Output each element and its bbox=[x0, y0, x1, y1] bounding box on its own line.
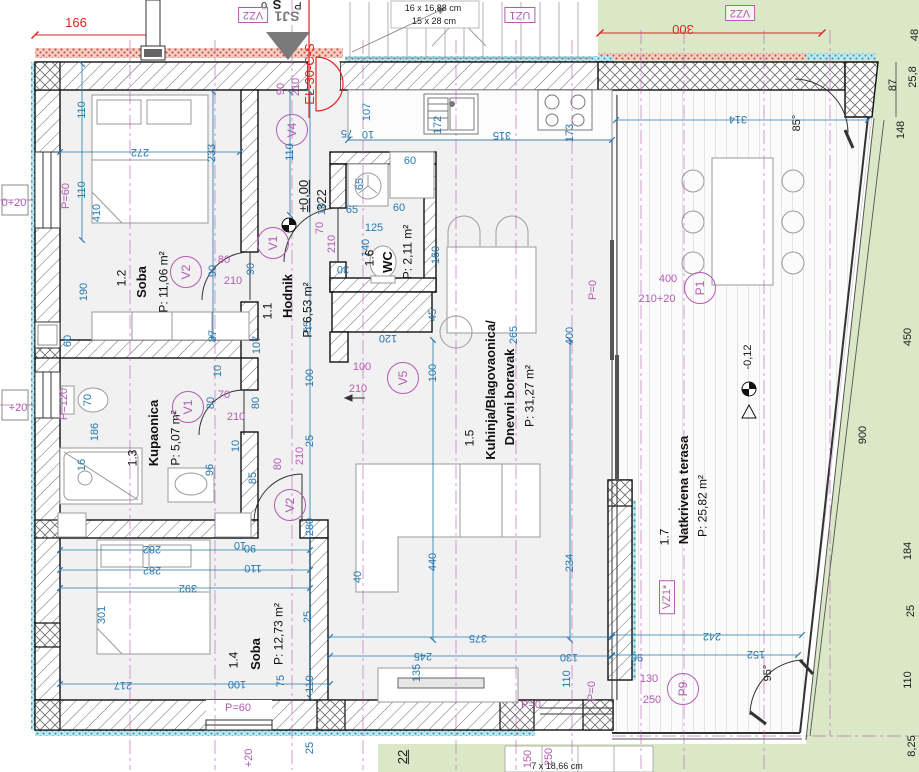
site-dim: 148 bbox=[895, 121, 907, 139]
door-spec: 0+20 bbox=[2, 197, 27, 209]
dim-label: 90 bbox=[245, 263, 257, 275]
wall-tag-uz1: UZ1 bbox=[505, 7, 536, 23]
parapet: P=60 bbox=[60, 183, 72, 209]
wall-tag-vz2: VZ2 bbox=[238, 7, 268, 23]
door-spec: 210 bbox=[294, 447, 306, 465]
red-dim: 166 bbox=[65, 16, 87, 30]
dim-label: 40 bbox=[352, 571, 364, 583]
floor-plan: 166300EL-30-C-SSJ10SP16 x 16,88 cm15 x 2… bbox=[0, 0, 919, 772]
dim-label: 85 bbox=[247, 472, 259, 484]
room-name: Kupaonica bbox=[147, 400, 161, 466]
dim-label: 242 bbox=[703, 630, 721, 642]
room-number: 1.7 bbox=[658, 529, 671, 546]
stair-spec: 15 x 28 cm bbox=[412, 17, 456, 27]
dim-label: 160 bbox=[430, 246, 442, 264]
room-name: Natkrivena terasa bbox=[677, 436, 691, 544]
opening-tag-p9: P9 bbox=[667, 673, 699, 705]
room-name: Soba bbox=[249, 638, 263, 670]
dim-label: 65 bbox=[354, 178, 366, 190]
dim-label: 152 bbox=[747, 648, 765, 660]
dim-label: 16 bbox=[76, 459, 88, 471]
dim-label: 10 bbox=[230, 440, 242, 452]
wall-tag-vz2: VZ2 bbox=[725, 5, 755, 21]
room-number: 1.3 bbox=[126, 450, 139, 467]
dim-label: 110 bbox=[304, 675, 316, 693]
room-name: Soba bbox=[135, 266, 149, 298]
dim-label: 100 bbox=[228, 678, 246, 690]
room-area: P: 12,73 m² bbox=[272, 603, 285, 665]
dim-label: 282 bbox=[143, 564, 161, 576]
dim-label: 90 bbox=[631, 651, 643, 663]
opening-tag-v2: V2 bbox=[170, 256, 202, 288]
room-name: Kuhinja/Blagovaonica/ bbox=[484, 320, 498, 459]
opening-tag-v5: V5 bbox=[387, 362, 419, 394]
door-spec: 210 bbox=[290, 78, 302, 96]
dim-label: 25 bbox=[304, 742, 316, 754]
red-dim: 300 bbox=[672, 22, 694, 36]
site-dim: 48 bbox=[909, 29, 919, 41]
electrical-tag: EL-30-C-S bbox=[303, 43, 317, 104]
door-spec: 250 bbox=[543, 748, 555, 766]
opening-tag-v1: V1 bbox=[257, 227, 289, 259]
dim-label: 110 bbox=[561, 670, 573, 688]
parapet: P=0 bbox=[521, 699, 541, 711]
dim-label: 90 bbox=[207, 265, 219, 277]
dim-label: 10 bbox=[362, 128, 374, 140]
dim-label: 135 bbox=[411, 664, 423, 682]
dim-label: 60 bbox=[62, 335, 74, 347]
cutoff-text: P bbox=[294, 0, 301, 11]
level-marker: -0,12 bbox=[742, 344, 754, 369]
door-spec: +20 bbox=[243, 749, 255, 768]
opening-tag-v4: V4 bbox=[276, 114, 308, 146]
dim-label: 375 bbox=[469, 632, 487, 644]
site-dim: 25 bbox=[905, 605, 917, 617]
parapet: P=60 bbox=[225, 702, 251, 714]
wall-tag-vz1: VZ1* bbox=[659, 580, 675, 614]
door-spec: +20 bbox=[9, 402, 28, 414]
dim-label: 265 bbox=[508, 326, 520, 344]
door-spec: 90 bbox=[275, 83, 287, 95]
door-spec: 80 bbox=[218, 254, 230, 266]
dim-label: 110 bbox=[76, 101, 88, 119]
cutoff-text: S bbox=[273, 0, 282, 11]
dim-label: 110 bbox=[244, 562, 262, 574]
opening-tag-p1: P1 bbox=[684, 272, 716, 304]
door-spec: 250 bbox=[643, 694, 661, 706]
dim-label: 190 bbox=[78, 283, 90, 301]
dim-label: 440 bbox=[427, 553, 439, 571]
dim-label: 30 bbox=[337, 263, 349, 275]
angle: 85° bbox=[791, 115, 803, 132]
dim-label: 107 bbox=[361, 103, 373, 121]
dim-label: 410 bbox=[91, 204, 103, 222]
door-spec: 210 bbox=[224, 275, 242, 287]
dim-label: 314 bbox=[729, 113, 747, 125]
room-area: P: 25,82 m² bbox=[696, 475, 709, 537]
dim-label: 282 bbox=[143, 543, 161, 555]
angle: 95° bbox=[762, 665, 774, 682]
door-spec: 70 bbox=[314, 222, 326, 234]
opening-tag-v1: V1 bbox=[172, 391, 204, 423]
stair-spec: 7 x 18,66 cm bbox=[531, 762, 583, 772]
dim-label: 25 bbox=[304, 435, 316, 447]
dim-label: 272 bbox=[131, 146, 149, 158]
dim-label: 280 bbox=[304, 518, 316, 536]
parapet: P=120 bbox=[58, 388, 70, 420]
door-spec: 210 bbox=[349, 383, 367, 395]
site-dim: 450 bbox=[902, 328, 914, 346]
dim-label: 75 bbox=[275, 675, 287, 687]
room-name: Dnevni boravak bbox=[503, 349, 517, 446]
site-dim: 8,25 bbox=[906, 735, 918, 756]
parapet: P=0 bbox=[587, 280, 599, 300]
dim-label: 25 bbox=[302, 611, 314, 623]
dim-label: 172 bbox=[432, 116, 444, 134]
dim-label: 125 bbox=[365, 222, 383, 234]
door-spec: 150 bbox=[522, 750, 534, 768]
dim-label: 80 bbox=[205, 397, 217, 409]
dim-label: 130 bbox=[560, 651, 578, 663]
annotation-layer: 166300EL-30-C-SSJ10SP16 x 16,88 cm15 x 2… bbox=[0, 0, 919, 772]
dim-label: 400 bbox=[564, 327, 576, 345]
dim-label: 70 bbox=[82, 394, 94, 406]
dim-label: 10 bbox=[316, 203, 328, 215]
door-spec: 210+20 bbox=[638, 293, 675, 305]
room-name: WC bbox=[381, 251, 395, 273]
room-area: P: 6,53 m² bbox=[301, 282, 314, 337]
room-number: 1.4 bbox=[227, 652, 240, 669]
dim-label: 45 bbox=[427, 309, 439, 321]
dim-label: 233 bbox=[206, 144, 218, 162]
room-number: 1.6 bbox=[363, 250, 376, 267]
dim-label: 234 bbox=[564, 554, 576, 572]
dim-label: 75 bbox=[341, 127, 353, 139]
dim-label: 10 bbox=[212, 365, 224, 377]
dim-label: 392 bbox=[179, 582, 197, 594]
door-spec: 100 bbox=[353, 361, 371, 373]
dim-label: 120 bbox=[379, 332, 397, 344]
dim-label: 60 bbox=[404, 155, 416, 167]
door-spec: 70 bbox=[218, 389, 230, 401]
dim: 22 bbox=[396, 750, 410, 764]
dim-label: 96 bbox=[204, 464, 216, 476]
dim-label: 110 bbox=[76, 181, 88, 199]
room-number: 1.2 bbox=[115, 270, 128, 287]
stair-spec: 16 x 16,88 cm bbox=[405, 4, 462, 14]
room-number: 1.1 bbox=[261, 303, 274, 320]
dim-label: 100 bbox=[304, 369, 316, 387]
room-number: 1.5 bbox=[463, 430, 476, 447]
dim-label: 107 bbox=[251, 336, 263, 354]
door-spec: 400 bbox=[659, 273, 677, 285]
site-dim: 110 bbox=[902, 671, 914, 689]
level-marker: ±0,00 bbox=[297, 180, 311, 212]
dim-label: 87 bbox=[207, 330, 219, 342]
dim-label: 186 bbox=[89, 423, 101, 441]
dim-label: 10 bbox=[234, 539, 246, 551]
dim-label: 100 bbox=[427, 364, 439, 382]
dim-label: 60 bbox=[393, 202, 405, 214]
dim-label: 315 bbox=[493, 129, 511, 141]
room-area: P: 2,11 m² bbox=[401, 225, 414, 279]
room-area: P: 31,27 m² bbox=[523, 365, 536, 427]
door-spec: 210 bbox=[227, 411, 245, 423]
room-name: Hodnik bbox=[281, 274, 295, 318]
dim-label: 217 bbox=[114, 679, 132, 691]
dim-label: 301 bbox=[96, 606, 108, 624]
dim-label: 65 bbox=[346, 204, 358, 216]
room-area: P: 11,06 m² bbox=[157, 251, 170, 312]
site-dim: 900 bbox=[857, 426, 869, 444]
dim-label: 245 bbox=[414, 650, 432, 662]
opening-tag-v2: V2 bbox=[274, 489, 306, 521]
door-spec: 80 bbox=[272, 458, 284, 470]
site-dim: 25,8 bbox=[907, 66, 919, 87]
parapet: P=0 bbox=[586, 681, 598, 701]
site-dim: 184 bbox=[902, 542, 914, 560]
door-spec: 130 bbox=[640, 673, 658, 685]
dim-label: 80 bbox=[250, 397, 262, 409]
site-dim: 87 bbox=[887, 79, 899, 91]
dim-label: 173 bbox=[564, 124, 576, 142]
door-spec: 210 bbox=[326, 235, 338, 253]
